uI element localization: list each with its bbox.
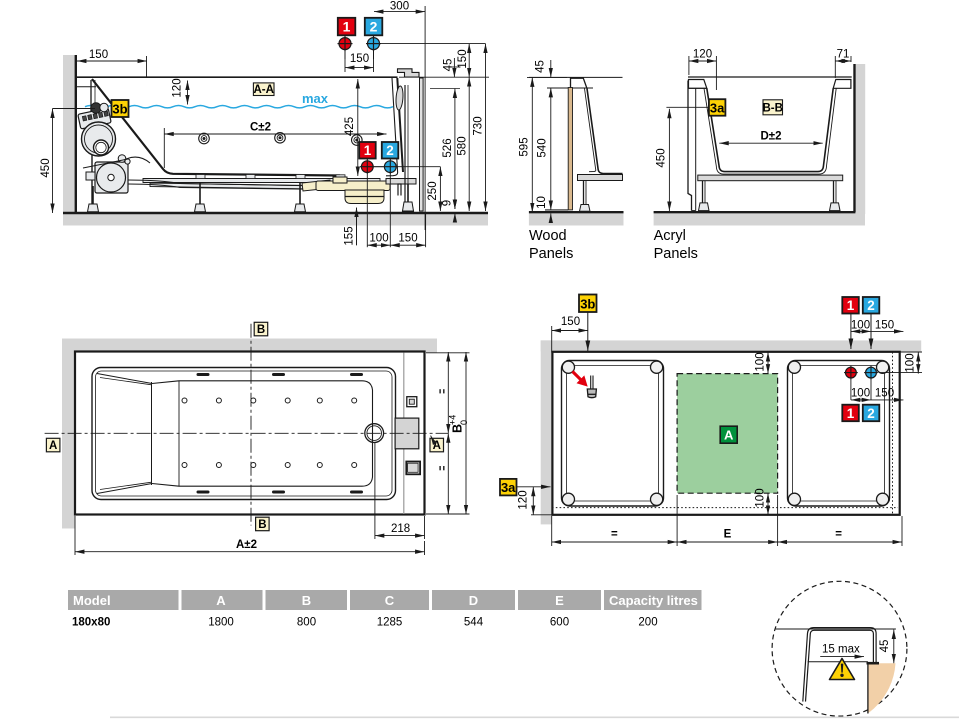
svg-text:730: 730 [473, 116, 485, 135]
svg-text:B: B [258, 519, 266, 531]
svg-text:Acryl: Acryl [654, 228, 686, 244]
svg-text:250: 250 [427, 181, 439, 200]
svg-text:A±2: A±2 [236, 539, 257, 551]
svg-text:45: 45 [535, 60, 547, 73]
svg-text:A: A [216, 593, 226, 608]
svg-text:544: 544 [464, 617, 484, 629]
svg-text:450: 450 [656, 148, 668, 167]
svg-text:3a: 3a [501, 480, 516, 495]
svg-text:D: D [469, 593, 478, 608]
svg-text:Wood: Wood [529, 228, 567, 244]
svg-text:580: 580 [457, 136, 469, 155]
svg-text:B-B: B-B [762, 103, 782, 115]
svg-text:45: 45 [879, 640, 891, 653]
svg-text:E: E [555, 593, 564, 608]
svg-text:A: A [433, 440, 441, 452]
svg-text:100: 100 [755, 488, 767, 507]
svg-text:max: max [302, 91, 329, 106]
svg-text:45: 45 [443, 59, 455, 72]
svg-text:2: 2 [386, 143, 394, 158]
svg-text:C: C [385, 593, 395, 608]
svg-text:B: B [257, 324, 265, 336]
svg-text:100: 100 [851, 388, 870, 400]
svg-text:540: 540 [537, 138, 549, 157]
svg-text:Panels: Panels [654, 246, 698, 262]
svg-text:10: 10 [536, 196, 548, 209]
svg-text:71: 71 [837, 49, 850, 61]
svg-text:A: A [49, 440, 57, 452]
svg-text:2: 2 [370, 19, 378, 35]
svg-text:595: 595 [519, 137, 531, 156]
svg-text:120: 120 [693, 49, 712, 61]
svg-text:155: 155 [344, 226, 356, 245]
svg-text:E: E [724, 529, 732, 541]
svg-text:A: A [724, 428, 734, 443]
svg-text:2: 2 [867, 406, 875, 421]
svg-text:B: B [302, 593, 311, 608]
svg-text:150: 150 [561, 316, 580, 328]
svg-text:15 max: 15 max [822, 644, 860, 656]
svg-text:=: = [611, 529, 618, 541]
svg-text:120: 120 [172, 78, 184, 97]
svg-text:100: 100 [755, 352, 767, 371]
svg-text:1: 1 [847, 298, 855, 313]
svg-text:1: 1 [847, 406, 855, 421]
svg-text:+4: +4 [448, 415, 458, 425]
svg-text:425: 425 [344, 117, 356, 136]
svg-text:150: 150 [457, 49, 469, 68]
svg-text:1: 1 [343, 19, 351, 35]
svg-text:300: 300 [390, 1, 409, 13]
svg-text:200: 200 [638, 617, 657, 629]
svg-text:180x80: 180x80 [72, 617, 110, 629]
svg-text:100: 100 [905, 353, 917, 372]
svg-text:526: 526 [442, 138, 454, 157]
svg-text:800: 800 [297, 617, 316, 629]
svg-text:3b: 3b [580, 296, 595, 311]
svg-text:0: 0 [459, 420, 469, 425]
svg-text:1285: 1285 [377, 617, 403, 629]
svg-text:450: 450 [40, 158, 52, 177]
svg-text:C±2: C±2 [250, 122, 271, 134]
svg-text:Capacity litres: Capacity litres [609, 593, 698, 608]
svg-text:D±2: D±2 [760, 131, 781, 143]
svg-text:=: = [835, 529, 842, 541]
svg-text:1: 1 [364, 143, 372, 158]
svg-text:100: 100 [369, 233, 388, 245]
svg-text:218: 218 [391, 523, 410, 535]
svg-text:9: 9 [442, 200, 454, 206]
svg-text:600: 600 [550, 617, 569, 629]
svg-text:100: 100 [851, 320, 870, 332]
svg-text:3b: 3b [112, 101, 127, 116]
svg-text:150: 150 [89, 49, 108, 61]
svg-text:150: 150 [398, 233, 417, 245]
svg-text:150: 150 [875, 320, 894, 332]
svg-text:3a: 3a [710, 100, 725, 115]
svg-text:150: 150 [350, 53, 369, 65]
svg-text:Model: Model [73, 593, 111, 608]
svg-text:150: 150 [875, 388, 894, 400]
svg-text:2: 2 [867, 298, 875, 313]
svg-text:Panels: Panels [529, 246, 573, 262]
svg-text:1800: 1800 [208, 617, 234, 629]
svg-text:120: 120 [518, 490, 530, 509]
svg-text:A-A: A-A [253, 84, 273, 96]
